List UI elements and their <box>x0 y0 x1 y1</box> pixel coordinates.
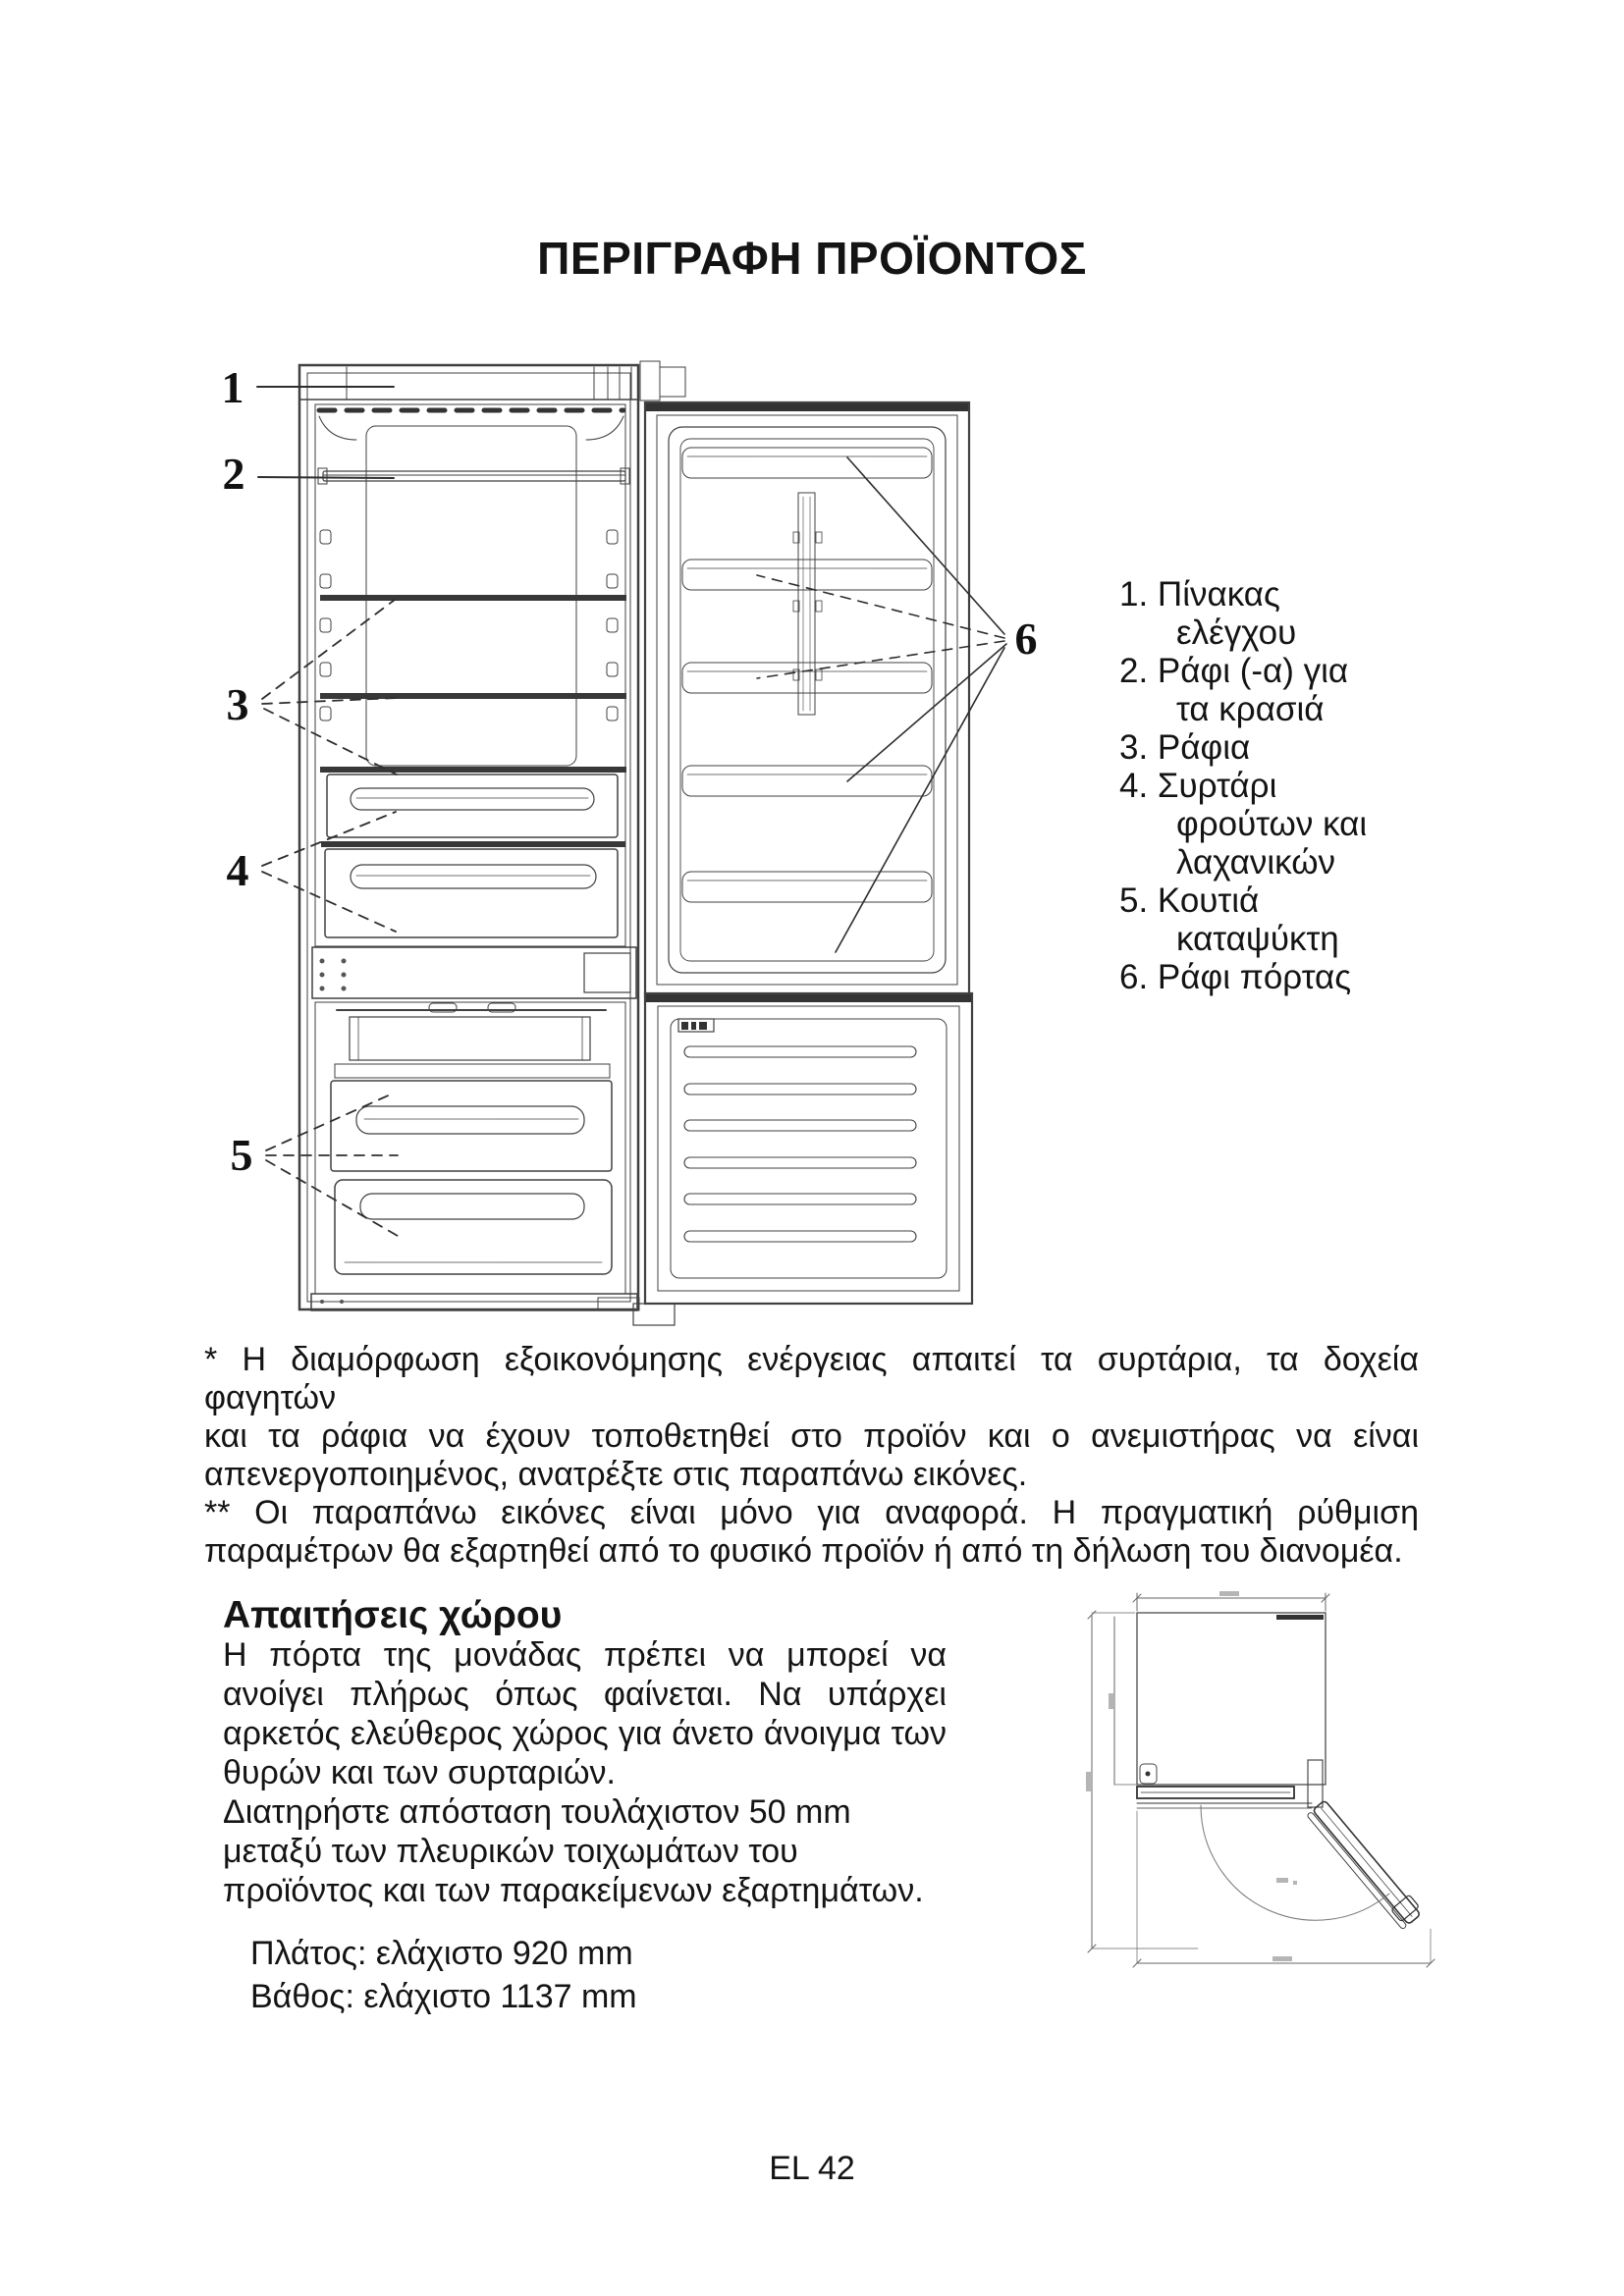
callout-1: 1 <box>209 365 256 410</box>
legend-line: 4. Συρτάρι <box>1119 767 1443 805</box>
dimension-lines <box>1086 1591 1435 1967</box>
space-requirements-text: Η πόρτα της μονάδας πρέπει να μπορεί ναα… <box>223 1635 947 1910</box>
dimension-line: Βάθος: ελάχιστο 1137 mm <box>250 1975 637 2018</box>
door-divider <box>793 493 822 715</box>
legend-line: 5. Κουτιά <box>1119 881 1443 920</box>
legend-line: 2. Ράφι (-α) για <box>1119 652 1443 690</box>
space-requirements-line: προϊόντος και των παρακείμενων εξαρτημάτ… <box>223 1871 947 1910</box>
callout-2: 2 <box>210 452 257 497</box>
footnote-line: παραμέτρων θα εξαρτηθεί από το φυσικό πρ… <box>204 1532 1419 1571</box>
legend-line: 3. Ράφια <box>1119 728 1443 767</box>
manual-page: ΠΕΡΙΓΡΑΦΗ ΠΡΟΪΟΝΤΟΣ <box>0 0 1624 2296</box>
page-number: EL 42 <box>0 2150 1624 2188</box>
callout-leaders <box>257 387 1006 1236</box>
freezer-door <box>633 993 972 1325</box>
space-requirements-figure <box>1080 1585 1483 2007</box>
footnotes: * Η διαμόρφωση εξοικονόμησης ενέργειας α… <box>204 1341 1419 1571</box>
legend-line: ελέγχου <box>1119 614 1443 652</box>
cabinet-top-view <box>1137 1613 1326 1807</box>
refrigerator-diagram <box>201 353 1065 1335</box>
crisper-drawers <box>321 774 625 937</box>
legend-line: 1. Πίνακας <box>1119 575 1443 614</box>
callout-3: 3 <box>214 682 261 727</box>
footnote-line: * Η διαμόρφωση εξοικονόμησης ενέργειας α… <box>204 1341 1419 1417</box>
space-requirements-line: θυρών και των συρταριών. <box>223 1753 947 1792</box>
footnote-line: ** Οι παραπάνω εικόνες είναι μόνο για αν… <box>204 1494 1419 1532</box>
hinge-band <box>312 947 636 998</box>
space-requirements-line: Διατηρήστε απόσταση τουλάχιστον 50 mm <box>223 1792 947 1832</box>
footnote-line: και τα ράφια να έχουν τοποθετηθεί στο πρ… <box>204 1417 1419 1456</box>
space-requirements-line: μεταξύ των πλευρικών τοιχωμάτων του <box>223 1832 947 1871</box>
minimum-dimensions: Πλάτος: ελάχιστο 920 mmΒάθος: ελάχιστο 1… <box>250 1932 637 2018</box>
legend-line: 6. Ράφι πόρτας <box>1119 958 1443 996</box>
space-requirements-line: Η πόρτα της μονάδας πρέπει να μπορεί να <box>223 1635 947 1675</box>
shelf-supports <box>320 530 618 721</box>
door-bins <box>682 448 932 902</box>
figure-legend: 1. Πίνακαςελέγχου2. Ράφι (-α) γιατα κρασ… <box>1119 575 1443 996</box>
door-open-top-view <box>1307 1797 1424 1929</box>
space-requirements-line: αρκετός ελεύθερος χώρος για άνετο άνοιγμ… <box>223 1714 947 1753</box>
space-requirements-heading: Απαιτήσεις χώρου <box>223 1594 562 1637</box>
legend-line: λαχανικών <box>1119 843 1443 881</box>
dimension-line: Πλάτος: ελάχιστο 920 mm <box>250 1932 637 1975</box>
refrigerator-figure: 1 2 3 4 5 6 <box>201 353 1065 1335</box>
door-top-view <box>1137 1787 1312 1808</box>
legend-line: καταψύκτη <box>1119 920 1443 958</box>
legend-line: φρούτων και <box>1119 805 1443 843</box>
wine-shelf <box>318 468 629 484</box>
footnote-line: απενεργοποιημένος, ανατρέξτε στις παραπά… <box>204 1456 1419 1494</box>
callout-6: 6 <box>1002 616 1050 662</box>
door-swing-arc <box>1201 1805 1389 1920</box>
callout-4: 4 <box>214 848 261 893</box>
callout-5: 5 <box>218 1133 265 1178</box>
freezer-compartment <box>311 1002 639 1310</box>
door-clearance-diagram <box>1080 1585 1483 2007</box>
page-title: ΠΕΡΙΓΡΑΦΗ ΠΡΟΪΟΝΤΟΣ <box>0 232 1624 285</box>
legend-line: τα κρασιά <box>1119 690 1443 728</box>
space-requirements-line: ανοίγει πλήρως όπως φαίνεται. Να υπάρχει <box>223 1675 947 1714</box>
